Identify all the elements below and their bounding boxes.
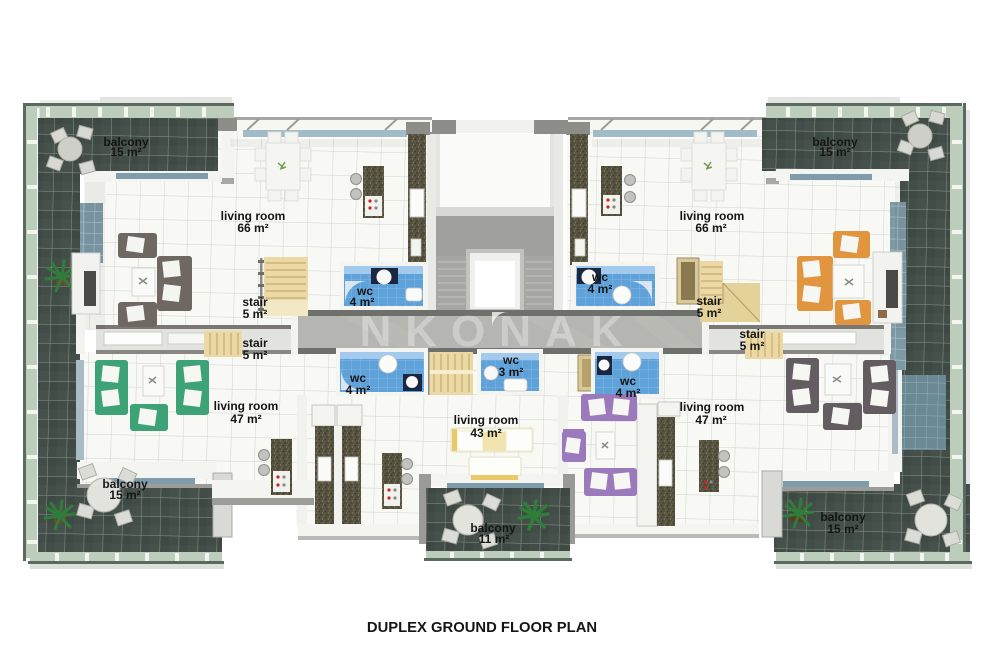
- svg-text:15 m²: 15 m²: [110, 145, 141, 159]
- svg-text:living room: living room: [454, 413, 519, 427]
- svg-text:47 m²: 47 m²: [230, 412, 261, 426]
- svg-text:4 m²: 4 m²: [616, 386, 641, 400]
- svg-text:5 m²: 5 m²: [740, 339, 765, 353]
- svg-text:15 m²: 15 m²: [819, 145, 850, 159]
- svg-text:DUPLEX GROUND FLOOR PLAN: DUPLEX GROUND FLOOR PLAN: [367, 620, 597, 636]
- svg-text:43 m²: 43 m²: [470, 426, 501, 440]
- svg-text:47 m²: 47 m²: [695, 413, 726, 427]
- svg-text:66 m²: 66 m²: [695, 221, 726, 235]
- svg-text:66 m²: 66 m²: [237, 221, 268, 235]
- svg-text:5 m²: 5 m²: [243, 348, 268, 362]
- svg-text:5 m²: 5 m²: [243, 307, 268, 321]
- svg-text:4 m²: 4 m²: [588, 282, 613, 296]
- svg-text:3 m²: 3 m²: [499, 365, 524, 379]
- svg-text:11 m²: 11 m²: [479, 532, 510, 546]
- svg-text:15 m²: 15 m²: [109, 488, 140, 502]
- svg-text:4 m²: 4 m²: [350, 295, 375, 309]
- svg-text:living room: living room: [214, 399, 279, 413]
- svg-text:15 m²: 15 m²: [827, 522, 858, 536]
- svg-text:4 m²: 4 m²: [346, 383, 371, 397]
- svg-text:living room: living room: [680, 400, 745, 414]
- svg-text:5 m²: 5 m²: [697, 306, 722, 320]
